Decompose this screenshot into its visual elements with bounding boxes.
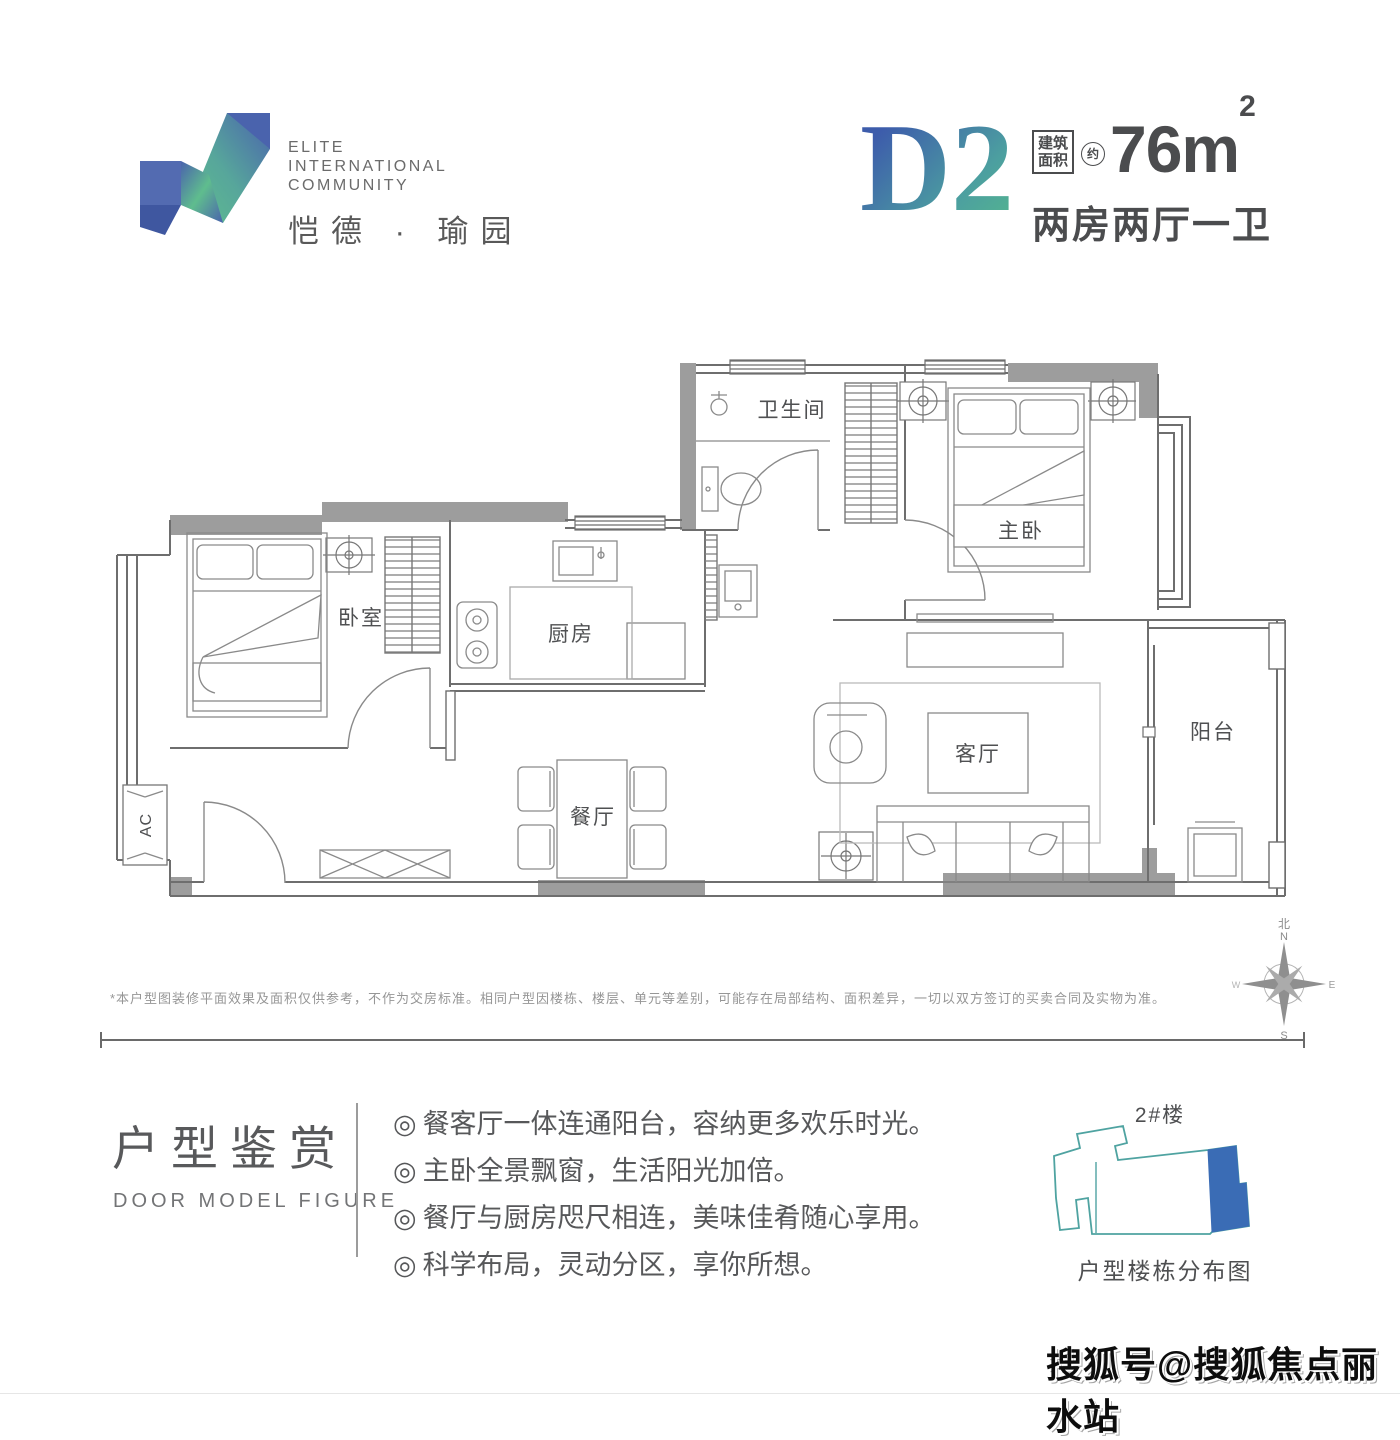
approx-circle: 约 <box>1081 142 1105 166</box>
area-value: 76m <box>1110 116 1239 182</box>
divider-tick-left <box>100 1032 102 1048</box>
sofa <box>877 806 1089 882</box>
label-living-room: 客厅 <box>955 743 1001 766</box>
bullet-icon: ◎ <box>393 1250 417 1280</box>
compass-n: N <box>1280 931 1288 943</box>
bed-bedroom <box>187 533 327 717</box>
building-label: 2#楼 <box>1135 1104 1185 1127</box>
washing-machine <box>1188 822 1242 882</box>
feature-item: ◎科学布局，灵动分区，享你所想。 <box>393 1242 936 1289</box>
label-bathroom: 卫生间 <box>758 399 827 422</box>
hall-basin <box>719 565 757 617</box>
feature-text: 餐客厅一体连通阳台，容纳更多欢乐时光。 <box>423 1109 936 1139</box>
feature-list: ◎餐客厅一体连通阳台，容纳更多欢乐时光。 ◎主卧全景飘窗，生活阳光加倍。 ◎餐厅… <box>393 1101 936 1289</box>
compass-e: E <box>1329 980 1336 991</box>
compass-icon: 北 N E S W <box>1228 912 1340 1042</box>
compass-w: W <box>1232 980 1241 990</box>
building-diagram: 2#楼 <box>1030 1092 1300 1257</box>
label-master-bedroom: 主卧 <box>998 520 1044 543</box>
tv-console <box>907 614 1063 667</box>
feature-item: ◎主卧全景飘窗，生活阳光加倍。 <box>393 1148 936 1195</box>
bullet-icon: ◎ <box>393 1156 417 1186</box>
feature-item: ◎餐厅与厨房咫尺相连，美味佳肴随心享用。 <box>393 1195 936 1242</box>
bathroom-sink-icon <box>711 391 727 415</box>
brand-line-2: INTERNATIONAL <box>288 157 447 176</box>
bottom-hairline <box>0 1393 1400 1394</box>
feature-text: 科学布局，灵动分区，享你所想。 <box>423 1250 828 1280</box>
unit-info: 建筑 面积 约 76m 2 <box>1032 116 1256 182</box>
feature-text: 主卧全景飘窗，生活阳光加倍。 <box>423 1156 801 1186</box>
bullet-icon: ◎ <box>393 1203 417 1233</box>
area-label-line1: 建筑 <box>1038 135 1068 152</box>
label-kitchen: 厨房 <box>548 623 594 646</box>
highlighted-unit <box>1208 1146 1249 1232</box>
building-diagram-svg: 2#楼 <box>1030 1092 1300 1252</box>
divider-tick-right <box>1303 1032 1305 1048</box>
floorplan-svg: 卫生间 主卧 卧室 厨房 客厅 餐厅 阳台 AC <box>105 355 1295 910</box>
label-dining-room: 餐厅 <box>570 806 616 829</box>
feature-text: 餐厅与厨房咫尺相连，美味佳肴随心享用。 <box>423 1203 936 1233</box>
area-superscript: 2 <box>1239 90 1256 124</box>
floorplan-disclaimer: *本户型图装修平面效果及面积仅供参考，不作为交房标准。相同户型因楼栋、楼层、单元… <box>110 988 1166 1007</box>
kitchen-sink <box>553 541 617 581</box>
brand-name-cn: 恺德 · 瑜园 <box>288 206 524 251</box>
column-symbols <box>323 379 1136 880</box>
vertical-divider <box>356 1103 358 1257</box>
armchair <box>814 703 886 783</box>
bullet-icon: ◎ <box>393 1109 417 1139</box>
brand-line-3: COMMUNITY <box>288 176 447 195</box>
toilet <box>702 467 761 511</box>
label-bedroom: 卧室 <box>338 607 384 630</box>
area-label-box: 建筑 面积 <box>1032 130 1074 174</box>
kitchen-stove <box>457 602 497 668</box>
shoe-cabinet <box>320 850 450 878</box>
section-divider-line <box>100 1039 1305 1041</box>
brand-line-1: ELITE <box>288 138 447 157</box>
compass: 北 N E S W <box>1228 912 1340 1047</box>
label-ac: AC <box>138 813 155 837</box>
brand-name-en: ELITE INTERNATIONAL COMMUNITY <box>288 138 447 195</box>
logo-mark-icon <box>135 105 285 245</box>
label-balcony: 阳台 <box>1190 721 1236 744</box>
floorplan: 卫生间 主卧 卧室 厨房 客厅 餐厅 阳台 AC <box>105 355 1295 915</box>
brand-logo-icon <box>135 105 285 245</box>
building-caption: 户型楼栋分布图 <box>1030 1252 1300 1286</box>
compass-north-cn: 北 <box>1278 917 1290 931</box>
area-label-line2: 面积 <box>1038 152 1068 169</box>
kitchen-fridge <box>627 623 685 679</box>
bed-master <box>948 388 1090 572</box>
feature-item: ◎餐客厅一体连通阳台，容纳更多欢乐时光。 <box>393 1101 936 1148</box>
watermark-text: 搜狐号@搜狐焦点丽水站 <box>1046 1336 1400 1440</box>
unit-code: D2 <box>860 104 1030 254</box>
unit-layout: 两房两厅一卫 <box>1032 194 1272 249</box>
section-title-cn: 户型鉴赏 <box>112 1110 348 1179</box>
